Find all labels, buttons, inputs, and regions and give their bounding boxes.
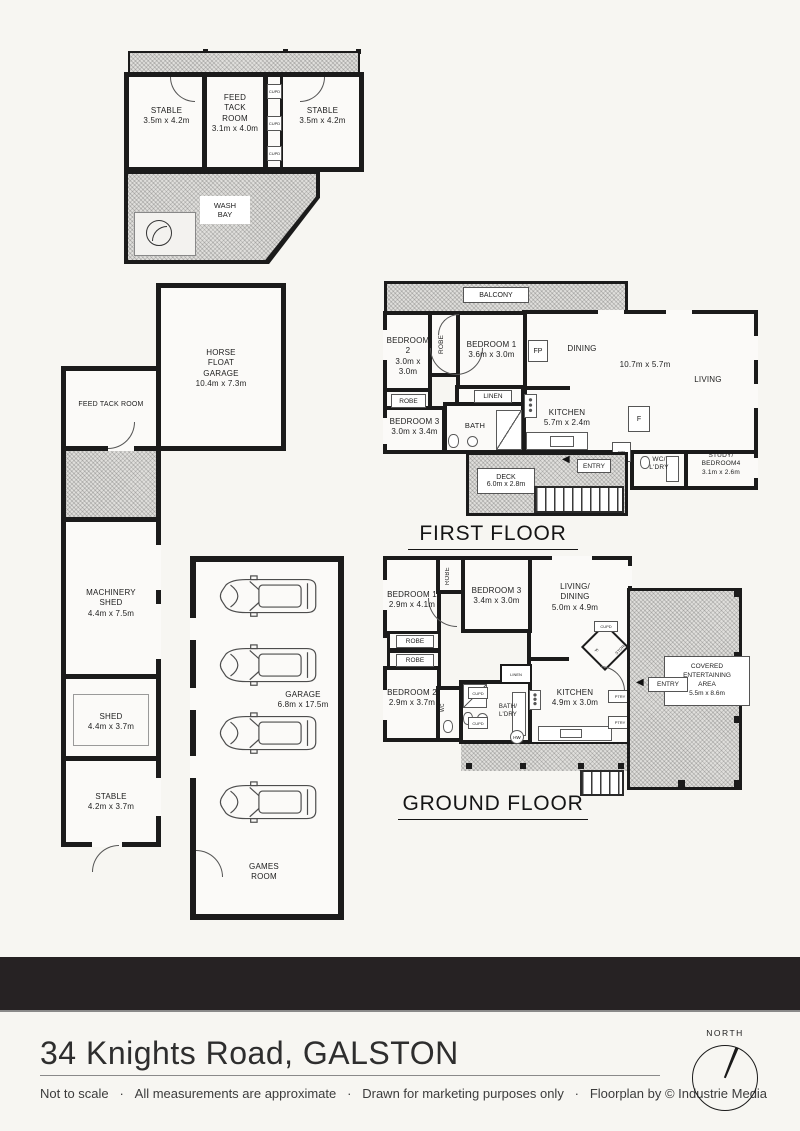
address-title: 34 Knights Road, GALSTON bbox=[40, 1035, 459, 1072]
room-label-robe: ROBE bbox=[445, 562, 456, 590]
room-label-kitchen: KITCHEN 5.7m x 2.4m bbox=[535, 408, 599, 429]
room-label-kitchen: KITCHEN 4.9m x 3.0m bbox=[540, 688, 610, 709]
post bbox=[678, 780, 685, 787]
ground-floor-title: GROUND FLOOR bbox=[398, 792, 588, 820]
room-label-robe: ROBE bbox=[396, 654, 434, 667]
room-label-living-dining: LIVING/ DINING 5.0m x 4.9m bbox=[540, 582, 610, 613]
car-top-icon bbox=[214, 781, 324, 825]
fridge-icon: F bbox=[628, 406, 650, 432]
wall bbox=[522, 386, 570, 390]
cupboard: CUPD bbox=[267, 146, 282, 161]
room-label-garage: GARAGE 6.8m x 17.5m bbox=[262, 690, 344, 711]
room-label-bedroom3: BEDROOM 3 3.4m x 3.0m bbox=[464, 586, 529, 607]
window-gap bbox=[754, 336, 758, 360]
door-gap bbox=[190, 756, 196, 778]
roller-door-gap bbox=[156, 604, 161, 659]
floorplan-page: CUPD CUPD CUPD STABLE 3.5m x 4.2m FEED T… bbox=[0, 0, 800, 1131]
room-label-dining: DINING bbox=[558, 344, 606, 354]
room-label-horse-float-garage: HORSE FLOAT GARAGE 10.4m x 7.3m bbox=[171, 348, 271, 390]
entry-arrow-icon: ◀ bbox=[634, 676, 646, 689]
room-label-bedroom3: BEDROOM 3 3.0m x 3.4m bbox=[385, 417, 444, 438]
entry-label: ENTRY bbox=[648, 677, 688, 692]
verandah bbox=[461, 744, 627, 771]
room-label-machinery-shed: MACHINERY SHED 4.4m x 7.5m bbox=[66, 588, 156, 619]
room-label-bedroom2: BEDROOM 2 2.9m x 3.7m bbox=[386, 688, 438, 709]
linen-closet: LINEN bbox=[500, 664, 532, 684]
room-label-wash-bay: WASH BAY bbox=[200, 196, 250, 224]
room-label-deck: DECK 6.0m x 2.8m bbox=[477, 468, 535, 494]
room-label-bath-laundry: BATH/ L'DRY bbox=[486, 704, 530, 720]
post bbox=[734, 590, 741, 597]
divider-bar bbox=[0, 957, 800, 1012]
window-gap bbox=[598, 310, 624, 314]
room-label-games-room: GAMES ROOM bbox=[222, 862, 306, 883]
room-label-study: STUDY/ BEDROOM4 3.1m x 2.6m bbox=[686, 452, 756, 477]
room-label-bedroom1: BEDROOM 1 2.9m x 4.1m bbox=[386, 590, 438, 611]
stairs bbox=[534, 486, 624, 513]
car-top-icon bbox=[214, 712, 324, 756]
window-gap bbox=[156, 778, 161, 816]
room-label-robe: ROBE bbox=[391, 394, 426, 408]
cupboard: CUPD bbox=[267, 116, 282, 131]
toilet-icon bbox=[448, 434, 459, 448]
toilet-icon bbox=[443, 720, 453, 733]
post bbox=[618, 763, 624, 769]
room-label-living-dims: 10.7m x 5.7m bbox=[616, 360, 674, 370]
window-gap bbox=[754, 384, 758, 408]
basin-icon bbox=[467, 436, 478, 447]
room-label-feed-tack-room: FEED TACK ROOM bbox=[66, 400, 156, 409]
car-top-icon bbox=[214, 575, 324, 619]
fireplace-icon: FP bbox=[528, 340, 548, 362]
cupboard: CUPD bbox=[267, 84, 282, 99]
wall bbox=[527, 657, 569, 661]
window-gap bbox=[666, 310, 692, 314]
room-label-bath: BATH bbox=[455, 421, 495, 431]
post bbox=[734, 780, 741, 787]
door-arc bbox=[92, 845, 119, 872]
divider-line bbox=[40, 1075, 660, 1076]
room-label-living: LIVING bbox=[684, 375, 732, 385]
room-label-linen: LINEN bbox=[474, 390, 512, 403]
room-label-stable-right: STABLE 3.5m x 4.2m bbox=[285, 106, 360, 127]
roller-door-gap bbox=[156, 545, 161, 590]
cupboard: CUPD bbox=[468, 687, 488, 699]
window-gap bbox=[628, 566, 632, 586]
entry-arrow-icon: ◀ bbox=[560, 453, 572, 466]
window-gap bbox=[552, 556, 592, 560]
room-label-balcony: BALCONY bbox=[463, 287, 529, 303]
room-label-feed-tack: FEED TACK ROOM 3.1m x 4.0m bbox=[205, 93, 265, 135]
post bbox=[578, 763, 584, 769]
car-top-icon bbox=[214, 644, 324, 688]
room-label-bedroom2: BEDROOM 2 3.0m x 3.0m bbox=[385, 336, 431, 378]
sink-icon bbox=[550, 436, 574, 447]
post bbox=[466, 763, 472, 769]
post bbox=[520, 763, 526, 769]
room-label-bedroom1: BEDROOM 1 3.6m x 3.0m bbox=[458, 340, 525, 361]
first-floor-title: FIRST FLOOR bbox=[408, 522, 578, 550]
room-label-wc: WC bbox=[440, 698, 449, 718]
breezeway bbox=[61, 451, 161, 517]
room-label-stable: STABLE 4.2m x 3.7m bbox=[66, 792, 156, 813]
room-label-robe: ROBE bbox=[438, 322, 450, 366]
hot-water-icon: HW bbox=[510, 730, 524, 744]
north-label: NORTH bbox=[701, 1028, 749, 1039]
wall bbox=[61, 756, 161, 761]
disclaimer-text: Not to scale · All measurements are appr… bbox=[40, 1086, 767, 1101]
shower-icon bbox=[496, 410, 522, 450]
entry-label: ENTRY bbox=[577, 459, 611, 473]
door-gap bbox=[190, 618, 196, 640]
pantry-cupboard-label: CUPD bbox=[594, 621, 618, 632]
room-label-robe: ROBE bbox=[396, 635, 434, 648]
room-label-shed: SHED 4.4m x 3.7m bbox=[66, 712, 156, 733]
cupboard: CUPD bbox=[468, 717, 488, 729]
door-gap bbox=[190, 688, 196, 710]
post bbox=[734, 716, 741, 723]
wall bbox=[61, 674, 161, 679]
room-label-wc-laundry: WC/ L'DRY bbox=[634, 456, 684, 473]
room-label-stable-left: STABLE 3.5m x 4.2m bbox=[129, 106, 204, 127]
sink-icon bbox=[560, 729, 582, 738]
